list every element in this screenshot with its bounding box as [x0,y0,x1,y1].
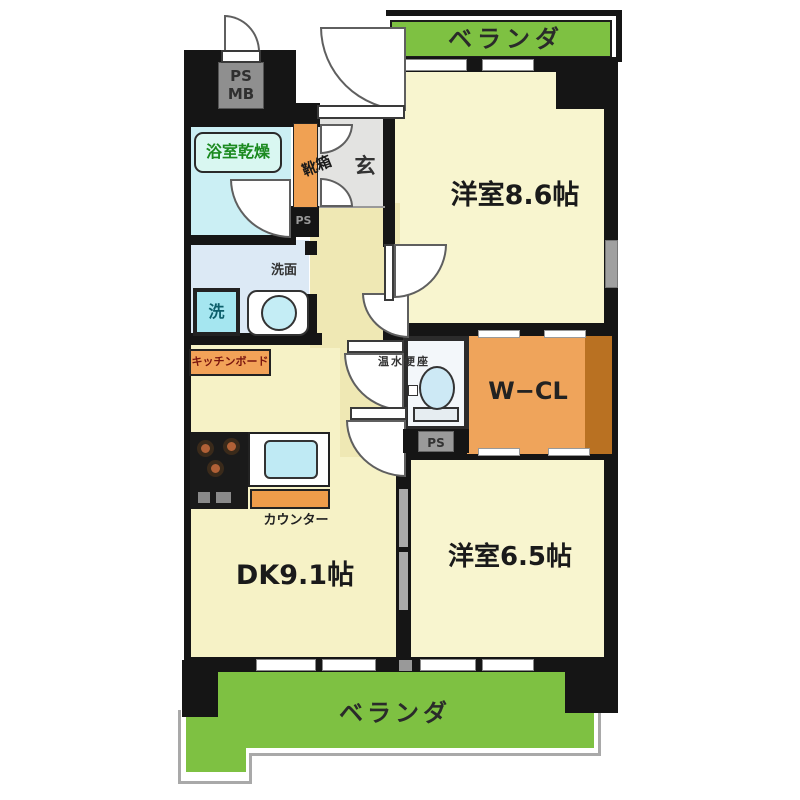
room-65-label: 洋室6.5帖 [430,543,590,573]
walk-in-closet-dark-strip [585,336,612,454]
fridge-chip-2 [216,492,231,503]
ps-entry-label: PS [296,215,312,228]
stove-unit [190,432,248,487]
stove-burner-3 [207,460,224,477]
wall-left [184,127,191,663]
kitchen-sink [264,440,318,479]
ps-shaft-plate: PS [418,431,453,452]
window-bottom-divider [399,660,412,671]
veranda-outline-bottom [249,753,601,756]
stove-burner-2 [223,438,240,455]
window-right [605,240,618,288]
kitchen-board-plate: キッチンボード [189,349,271,376]
wall-top-right-notch [556,57,618,109]
window-bottom-4 [482,659,534,671]
washroom-label: 洗面 [260,264,308,279]
ps-shaft-label: PS [427,436,444,450]
fridge-chip-1 [198,492,210,503]
veranda-top-outer-right [616,10,622,62]
window-bottom-2 [322,659,376,671]
washing-machine-label: 洗 [208,303,224,321]
divider-door-seg-2 [399,552,408,610]
stove-burner-1 [197,440,214,457]
window-top-1 [397,59,467,71]
toilet-label: 温水便座 [348,356,460,369]
walk-in-closet-label: W−CL [470,378,586,406]
counter-label: カウンター [250,514,342,529]
kitchen-counter-bar [250,489,330,509]
ps-shaft-box: PS [403,429,469,453]
dk-door-leaf [350,407,407,420]
veranda-outline-right [598,712,601,756]
veranda-bottom-label: ベランダ [320,700,470,728]
front-door-arc [320,27,406,111]
dk-label: DK9.1帖 [220,560,370,591]
wcl-vent-top-1 [478,330,520,338]
veranda-outline-bottom-left [178,781,252,784]
wcl-vent-top-2 [544,330,586,338]
kitchen-board-label: キッチンボード [192,356,269,369]
wcl-vent-bottom-2 [548,448,590,456]
wall-entrance-right [383,103,395,247]
window-bottom-3 [420,659,476,671]
veranda-outline-left [178,710,181,784]
toilet-bowl [419,366,455,410]
divider-door-seg-1 [399,489,408,547]
washbasin-bowl [261,295,297,331]
toilet-door-leaf [347,340,404,353]
veranda-top-label: ベランダ [416,26,596,54]
wall-bottom-right-block [565,658,618,713]
veranda-bottom-left-step [186,714,246,772]
window-top-2 [482,59,534,71]
bath-dryer-plate: 浴室乾燥 [194,132,282,173]
window-bottom-1 [256,659,316,671]
floor-plan: ベランダ ベランダ PS MB PS PS [0,0,800,800]
wcl-vent-bottom-1 [478,448,520,456]
veranda-top-outer-line [386,10,622,16]
entrance-label: 玄 [352,154,378,178]
ps-mb-label-1: PS [230,68,252,85]
wall-wash-right-top [305,241,317,255]
ps-entry-box: PS [288,206,319,237]
ps-mb-box: PS MB [218,62,264,109]
ps-mb-label-2: MB [228,86,254,103]
veranda-outline-step [249,753,252,784]
mb-door-arc [224,15,260,52]
bath-dryer-label: 浴室乾燥 [206,143,270,161]
mb-door-leaf [221,50,261,63]
room-86-label: 洋室8.6帖 [425,180,605,211]
washing-machine: 洗 [193,288,240,336]
toilet-valve [408,385,418,396]
front-door-leaf [317,105,405,119]
room-86-door-leaf [384,244,394,301]
